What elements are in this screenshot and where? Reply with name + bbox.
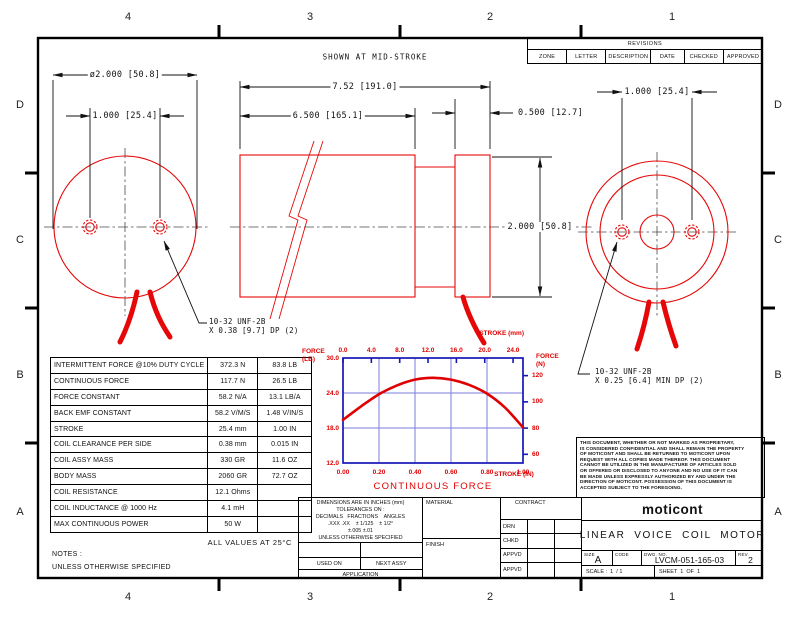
zone-label-top: 3 [307, 11, 313, 23]
spec-label: STROKE [51, 421, 208, 437]
zone-label-right: B [774, 369, 781, 381]
finish-label: FINISH [423, 539, 500, 578]
motor-body [240, 155, 415, 297]
notes-line: UNLESS OTHERWISE SPECIFIED [52, 564, 171, 571]
all-values-note: ALL VALUES AT 25°C [120, 538, 292, 547]
sheet-text: SHEET 1 OF 1 [655, 566, 700, 578]
scale-text: SCALE : 1 / 1 [582, 566, 655, 578]
application-empty-row [299, 543, 422, 558]
revisions-col-description: DESCRIPTION [606, 50, 651, 64]
spec-label: INTERMITTENT FORCE @10% DUTY CYCLE [51, 358, 208, 374]
spec-metric: 25.4 mm [208, 421, 258, 437]
rev-value: 2 [738, 557, 763, 564]
application-label: APPLICATION [299, 570, 422, 579]
spec-imperial: 0.015 IN [258, 437, 312, 453]
chart-tick-label: 0.60 [445, 469, 458, 476]
zone-label-right: D [774, 99, 782, 111]
spec-metric: 4.1 mH [208, 501, 258, 517]
tolerance-text: DIMENSIONS ARE IN INCHES (mm)TOLERANCES … [299, 498, 422, 543]
spec-row: FORCE CONSTANT58.2 N/A13.1 LB/A [51, 389, 312, 405]
rev-cell: REV. 2 [736, 551, 763, 565]
thread-note-right-line2: X 0.25 [6.4] MIN DP (2) [595, 376, 703, 385]
spec-row: BACK EMF CONSTANT58.2 V/M/S1.48 V/IN/S [51, 405, 312, 421]
tolerance-line: TOLERANCES ON : [299, 507, 422, 514]
spec-metric: 2060 GR [208, 469, 258, 485]
proprietary-note-line: THIS DOCUMENT, WHETHER OR NOT MARKED AS … [580, 440, 761, 446]
mid-stroke-note: SHOWN AT MID-STROKE [323, 53, 428, 62]
zone-label-left: B [16, 369, 23, 381]
dim-cap-length: 0.500 [12.7] [516, 108, 585, 118]
force-curve [343, 378, 523, 428]
chart-tick-label: 12.0 [422, 347, 435, 354]
revisions-title: REVISIONS [528, 38, 762, 50]
zone-label-top: 1 [669, 11, 675, 23]
drawing-sheet: 4 3 2 1 4 3 2 1 D C B A D C B A REVISION… [0, 0, 800, 618]
chart-tick-label: 120 [532, 372, 543, 379]
thread-note-right-line1: 10-32 UNF-2B [595, 367, 703, 376]
force-chart-plot [343, 358, 528, 463]
tolerance-line: DECIMALS FRACTIONS ANGLES [299, 514, 422, 521]
zone-label-top: 2 [487, 11, 493, 23]
chart-tick-label: 60 [532, 451, 539, 458]
revisions-col-zone: ZONE [528, 50, 567, 64]
sign-row-label: DRN [501, 520, 528, 533]
spec-metric: 372.3 N [208, 358, 258, 374]
zone-label-left: C [16, 234, 24, 246]
sign-row: APPVD [501, 549, 581, 563]
sign-row: APPVD [501, 563, 581, 577]
notes-label: NOTES : [52, 551, 82, 558]
revisions-col-date: DATE [651, 50, 684, 64]
company-logo: moticont [582, 498, 763, 521]
dim-body-diameter: 2.000 [50.8] [505, 222, 574, 232]
right-lead-wires [637, 302, 676, 349]
spec-label: FORCE CONSTANT [51, 389, 208, 405]
thread-note-left: 10-32 UNF-2B X 0.38 [9.7] DP (2) [209, 317, 299, 335]
spec-label: MAX CONTINUOUS POWER [51, 516, 208, 532]
spec-metric: 12.1 Ohms [208, 485, 258, 501]
chart-tick-label: 24.0 [326, 390, 339, 397]
revisions-col-letter: LETTER [567, 50, 606, 64]
material-label: MATERIAL [423, 498, 500, 539]
chart-tick-label: 24.0 [507, 347, 520, 354]
spec-label: CONTINUOUS FORCE [51, 373, 208, 389]
chart-bottom-axis-label: STROKE (IN) [480, 471, 548, 479]
zone-label-left: A [16, 506, 23, 518]
spec-metric: 50 W [208, 516, 258, 532]
chart-left-axis-label: FORCE (LB) [302, 348, 334, 364]
chart-top-axis-label: STROKE (mm) [452, 330, 524, 338]
sign-row-label: CHKD [501, 534, 528, 547]
chart-tick-label: 16.0 [450, 347, 463, 354]
spec-label: BODY MASS [51, 469, 208, 485]
zone-label-bottom: 1 [669, 591, 675, 603]
spec-label: COIL RESISTANCE [51, 485, 208, 501]
material-finish-block: MATERIAL FINISH [423, 498, 501, 579]
tolerance-block: DIMENSIONS ARE IN INCHES (mm)TOLERANCES … [299, 498, 423, 579]
zone-label-bottom: 2 [487, 591, 493, 603]
proprietary-note-line: OR OFFERED OR DISCLOSED TO ANYONE AND NO… [580, 468, 761, 474]
spec-label: BACK EMF CONSTANT [51, 405, 208, 421]
dwg-no-value: LVCM-051-165-03 [644, 557, 735, 564]
spec-imperial: 26.5 LB [258, 373, 312, 389]
spec-imperial: 11.6 OZ [258, 453, 312, 469]
spec-metric: 58.2 N/A [208, 389, 258, 405]
chart-tick-label: 100 [532, 398, 543, 405]
break-lines [270, 141, 323, 319]
zone-label-left: D [16, 99, 24, 111]
side-view [240, 141, 490, 343]
sign-row: CHKD [501, 534, 581, 548]
spec-row: INTERMITTENT FORCE @10% DUTY CYCLE372.3 … [51, 358, 312, 374]
chart-title: CONTINUOUS FORCE [358, 481, 508, 492]
revisions-table: REVISIONS ZONE LETTER DESCRIPTION DATE C… [527, 38, 762, 64]
spec-metric: 117.7 N [208, 373, 258, 389]
thread-note-left-line2: X 0.38 [9.7] DP (2) [209, 326, 299, 335]
spec-metric: 0.38 mm [208, 437, 258, 453]
tolerance-line: .XXX .XX ± 1/125 ± 1/2° [299, 521, 422, 528]
chart-tick-label: 4.0 [367, 347, 376, 354]
left-lead-wires [120, 292, 170, 342]
chart-tick-label: 0.20 [373, 469, 386, 476]
spec-metric: 330 GR [208, 453, 258, 469]
spec-row: COIL RESISTANCE12.1 Ohms [51, 485, 312, 501]
dim-right-hole-spacing: 1.000 [25.4] [622, 87, 691, 97]
spec-row: COIL ASSY MASS330 GR11.6 OZ [51, 453, 312, 469]
chart-tick-label: 0.40 [409, 469, 422, 476]
spec-label: COIL INDUCTANCE @ 1000 Hz [51, 501, 208, 517]
spec-imperial: 13.1 LB/A [258, 389, 312, 405]
tolerance-line: DIMENSIONS ARE IN INCHES (mm) [299, 500, 422, 507]
dim-overall-length: 7.52 [191.0] [330, 82, 399, 92]
spec-row: COIL INDUCTANCE @ 1000 Hz4.1 mH [51, 501, 312, 517]
thread-note-right: 10-32 UNF-2B X 0.25 [6.4] MIN DP (2) [595, 367, 703, 385]
zone-label-right: A [774, 506, 781, 518]
sign-row: DRN [501, 520, 581, 534]
leader-right-thread [578, 242, 617, 374]
spec-label: COIL CLEARANCE PER SIDE [51, 437, 208, 453]
revisions-col-checked: CHECKED [685, 50, 724, 64]
used-on-label: USED ON [299, 558, 361, 569]
size-cell: SIZE A [582, 551, 613, 565]
zone-label-bottom: 3 [307, 591, 313, 603]
tolerance-line: ±.005 ±.01 [299, 528, 422, 535]
drawing-title: LINEAR VOICE COIL MOTOR [582, 521, 763, 551]
title-block-strip: DIMENSIONS ARE IN INCHES (mm)TOLERANCES … [298, 497, 762, 578]
chart-tick-label: 12.0 [326, 460, 339, 467]
spec-row: STROKE25.4 mm1.00 IN [51, 421, 312, 437]
chart-right-axis-label: FORCE (N) [536, 353, 566, 369]
code-cell: CODE [613, 551, 642, 565]
dim-left-hole-spacing: 1.000 [25.4] [90, 111, 159, 121]
spec-imperial: 72.7 OZ [258, 469, 312, 485]
dim-body-length: 6.500 [165.1] [291, 111, 365, 121]
thread-note-left-line1: 10-32 UNF-2B [209, 317, 299, 326]
sign-row-label: APPVD [501, 563, 528, 577]
chart-tick-label: 20.0 [478, 347, 491, 354]
contract-label: CONTRACT [501, 498, 581, 520]
spec-imperial: 1.00 IN [258, 421, 312, 437]
spec-row: CONTINUOUS FORCE117.7 N26.5 LB [51, 373, 312, 389]
chart-tick-label: 0.00 [337, 469, 350, 476]
dim-left-diameter: ø2.000 [50.8] [88, 70, 162, 80]
chart-tick-label: 8.0 [395, 347, 404, 354]
sign-row-label: APPVD [501, 549, 528, 562]
proprietary-note: THIS DOCUMENT, WHETHER OR NOT MARKED AS … [576, 437, 765, 498]
revisions-col-approved: APPROVED [724, 50, 762, 64]
chart-border [343, 358, 523, 463]
spec-imperial: 1.48 V/IN/S [258, 405, 312, 421]
contract-block: CONTRACT DRN CHKD APPVD APPVD [501, 498, 582, 579]
end-cap [455, 155, 490, 297]
spec-metric: 58.2 V/M/S [208, 405, 258, 421]
spec-row: BODY MASS2060 GR72.7 OZ [51, 469, 312, 485]
proprietary-note-line: ACCEPTED SUBJECT TO THE FOREGOING. [580, 485, 761, 491]
size-value: A [584, 557, 612, 564]
dwg-no-cell: DWG. NO. LVCM-051-165-03 [642, 551, 736, 565]
chart-tick-label: 0.0 [338, 347, 347, 354]
spec-label: COIL ASSY MASS [51, 453, 208, 469]
chart-tick-label: 18.0 [326, 425, 339, 432]
title-block: moticont LINEAR VOICE COIL MOTOR SIZE A … [582, 498, 763, 579]
spec-row: COIL CLEARANCE PER SIDE0.38 mm0.015 IN [51, 437, 312, 453]
zone-label-bottom: 4 [125, 591, 131, 603]
zone-label-right: C [774, 234, 782, 246]
code-label: CODE [615, 552, 641, 557]
spec-row: MAX CONTINUOUS POWER50 W [51, 516, 312, 532]
spec-table: INTERMITTENT FORCE @10% DUTY CYCLE372.3 … [50, 357, 312, 533]
chart-tick-label: 80 [532, 425, 539, 432]
tolerance-line: UNLESS OTHERWISE SPECIFIED [299, 535, 422, 542]
next-assy-label: NEXT ASSY [361, 558, 423, 569]
zone-label-top: 4 [125, 11, 131, 23]
